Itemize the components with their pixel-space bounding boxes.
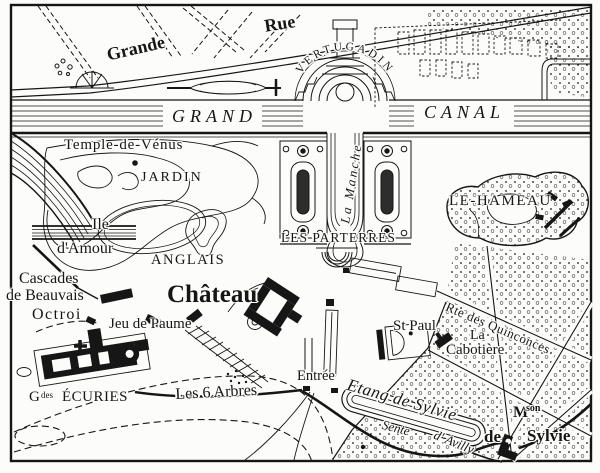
- map-label-les-parterres: LES PARTERRES: [281, 231, 396, 245]
- map-label-cabotiere: Cabotière: [446, 343, 504, 358]
- map-label-mson-sup: son: [526, 404, 540, 414]
- map-labels-layer: GrandeRueGRANDCANALTemple-de-VénusJARDIN…: [0, 0, 600, 473]
- map-label-entree: Entrée: [297, 369, 335, 384]
- map-label-les-6-arbres: Les 6 Arbres: [175, 383, 257, 403]
- map-label-rue: Rue: [263, 12, 296, 35]
- map-label-de-beauvais: de Beauvais: [6, 288, 84, 304]
- map-label-sente: Sente: [381, 418, 411, 437]
- map-label-ecuries-sup: des: [41, 391, 53, 400]
- map-label-sylvie-de: de: [484, 428, 501, 445]
- map-label-jardin: JARDIN: [141, 171, 203, 185]
- map-label-canal: CANAL: [424, 103, 505, 121]
- map-label-octroi: Octroi: [32, 307, 82, 323]
- map-label-st-paul: St Paul: [393, 319, 436, 334]
- map-label-etang-de-sylvie: Etang de Sylvie: [345, 376, 459, 424]
- map-label-ecuries-g: G: [29, 390, 40, 405]
- map-label-grand: GRAND: [172, 107, 257, 125]
- map-label-d-avilly: d' Avilly: [432, 428, 476, 456]
- map-label-sylvie: Sylvie: [527, 427, 570, 444]
- map-label-cascades: Cascades: [19, 271, 79, 287]
- chantilly-park-map: VERTUGADIN La Manche GrandeRueGRANDCANAL…: [0, 0, 600, 473]
- map-label-grande: Grande: [105, 33, 167, 64]
- map-label-anglais: ANGLAIS: [151, 253, 225, 268]
- map-label-la: La: [470, 329, 485, 343]
- map-label-le-hameau: LE-HAMEAU: [449, 194, 552, 209]
- map-label-chateau: Château: [167, 282, 257, 307]
- map-label-ecuries: ÉCURIES: [62, 390, 128, 405]
- map-label-temple-de-venus: Temple-de-Vénus: [64, 138, 183, 153]
- map-label-jeu-de-paume: Jeu de Paume: [109, 317, 191, 332]
- map-label-d-amour: d'Amour: [57, 241, 113, 257]
- map-label-ile: Ile: [92, 217, 109, 233]
